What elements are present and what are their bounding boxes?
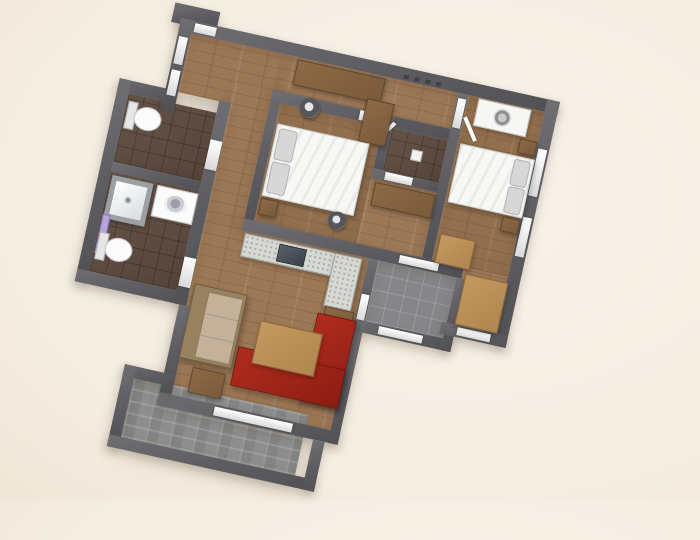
wall-terrace-right xyxy=(302,440,325,492)
wall-hook xyxy=(436,82,442,87)
closet-item xyxy=(410,149,423,162)
floor-plan xyxy=(64,0,637,536)
wall-hook xyxy=(425,79,431,84)
dresser-disc xyxy=(491,107,512,128)
sink-basin xyxy=(162,194,188,216)
bedside-table xyxy=(258,198,279,218)
wall-hook xyxy=(403,75,409,80)
wall-hook xyxy=(414,77,420,82)
shower-drain xyxy=(124,196,132,204)
